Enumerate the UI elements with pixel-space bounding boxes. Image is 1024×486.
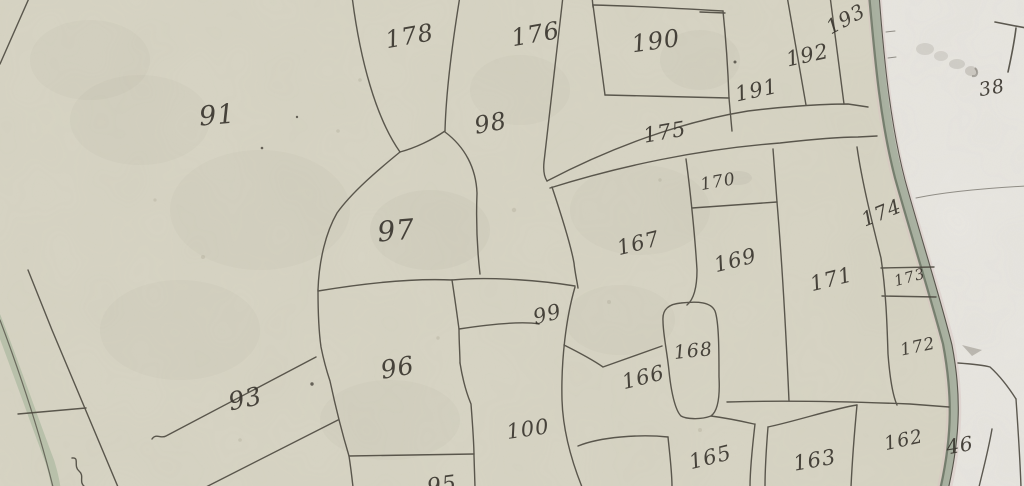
parcel-label-168: 168 [673,338,714,364]
parcel-label-97: 97 [376,212,416,248]
parcel-label-98: 98 [472,107,509,140]
parcel-label-96: 96 [378,350,416,384]
parcel-label-91: 91 [198,99,237,133]
parcel-label-38: 38 [977,75,1007,101]
map-canvas: 9117817698190191192193175170167169171174… [0,0,1024,486]
parcel-label-46: 46 [943,431,975,460]
map-stage: 9117817698190191192193175170167169171174… [0,0,1024,486]
